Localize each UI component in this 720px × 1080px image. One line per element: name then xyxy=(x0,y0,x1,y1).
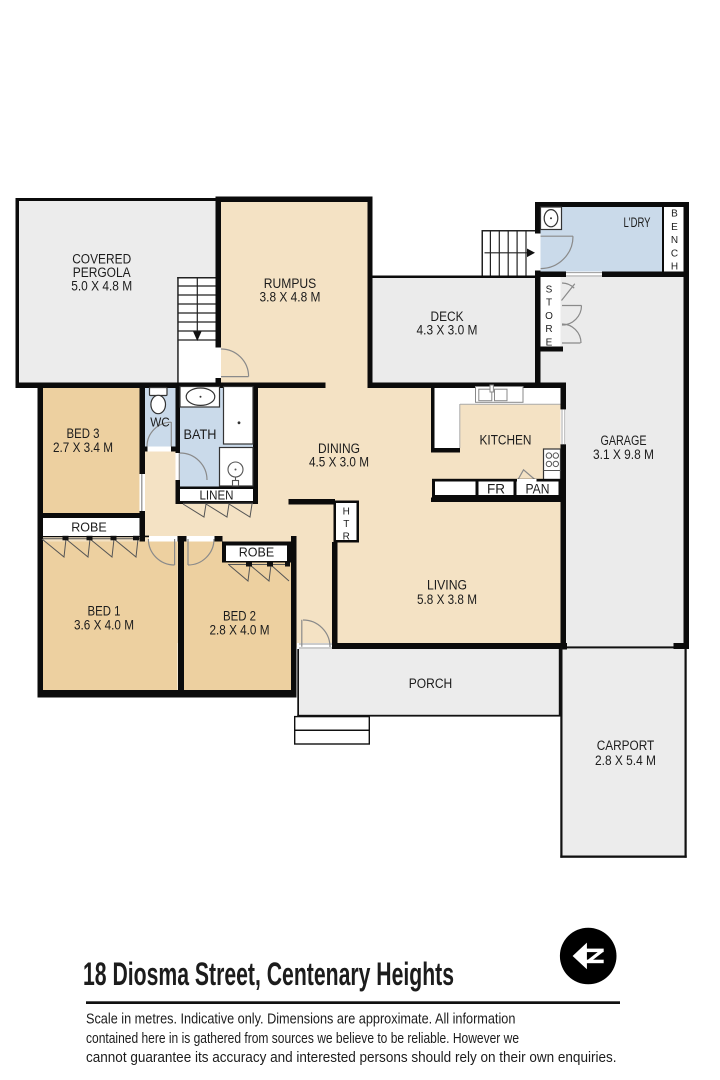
svg-text:R: R xyxy=(343,532,350,543)
svg-text:R: R xyxy=(545,324,552,335)
svg-text:5.0 X 4.8 M: 5.0 X 4.8 M xyxy=(71,279,132,294)
svg-text:BED 2: BED 2 xyxy=(223,609,256,624)
svg-text:H: H xyxy=(343,507,350,518)
svg-text:18 Diosma Street, Centenary He: 18 Diosma Street, Centenary Heights xyxy=(83,956,454,992)
svg-text:ROBE: ROBE xyxy=(239,546,274,560)
svg-text:FR: FR xyxy=(487,482,505,497)
svg-text:KITCHEN: KITCHEN xyxy=(480,433,532,448)
svg-text:4.3 X 3.0 M: 4.3 X 3.0 M xyxy=(417,323,478,338)
svg-text:contained here in is gathered: contained here in is gathered from sourc… xyxy=(86,1030,519,1047)
svg-text:L'DRY: L'DRY xyxy=(624,215,651,230)
svg-text:ROBE: ROBE xyxy=(71,521,106,535)
svg-text:WC: WC xyxy=(150,416,170,430)
svg-text:O: O xyxy=(545,311,553,322)
svg-text:B: B xyxy=(671,209,678,220)
svg-text:BED 1: BED 1 xyxy=(88,604,121,619)
svg-text:C: C xyxy=(671,248,678,259)
svg-text:E: E xyxy=(546,337,553,348)
svg-text:3.1 X 9.8 M: 3.1 X 9.8 M xyxy=(593,447,654,462)
svg-text:PORCH: PORCH xyxy=(409,676,453,691)
svg-text:LIVING: LIVING xyxy=(427,578,467,593)
svg-text:T: T xyxy=(343,519,349,530)
svg-text:T: T xyxy=(546,298,552,309)
svg-text:5.8 X 3.8 M: 5.8 X 3.8 M xyxy=(417,592,477,607)
svg-text:2.8 X 4.0 M: 2.8 X 4.0 M xyxy=(210,623,270,638)
svg-text:3.8 X 4.8 M: 3.8 X 4.8 M xyxy=(260,290,321,305)
svg-text:2.8 X 5.4 M: 2.8 X 5.4 M xyxy=(595,753,656,768)
svg-text:Scale in metres. Indicative on: Scale in metres. Indicative only. Dimens… xyxy=(86,1010,515,1027)
svg-text:N: N xyxy=(671,235,678,246)
svg-text:S: S xyxy=(546,285,553,296)
svg-text:E: E xyxy=(671,222,678,233)
svg-text:GARAGE: GARAGE xyxy=(601,433,647,448)
svg-text:LINEN: LINEN xyxy=(200,489,234,503)
svg-text:2.7 X 3.4 M: 2.7 X 3.4 M xyxy=(53,440,113,455)
svg-text:CARPORT: CARPORT xyxy=(597,738,655,753)
svg-text:3.6 X 4.0 M: 3.6 X 4.0 M xyxy=(74,618,134,633)
svg-text:PAN: PAN xyxy=(526,482,550,497)
svg-text:BATH: BATH xyxy=(184,427,217,442)
svg-text:H: H xyxy=(671,262,678,273)
svg-text:cannot guarantee its accuracy: cannot guarantee its accuracy and intere… xyxy=(86,1049,617,1066)
svg-text:4.5 X 3.0 M: 4.5 X 3.0 M xyxy=(309,455,369,470)
svg-text:BED 3: BED 3 xyxy=(67,426,100,441)
